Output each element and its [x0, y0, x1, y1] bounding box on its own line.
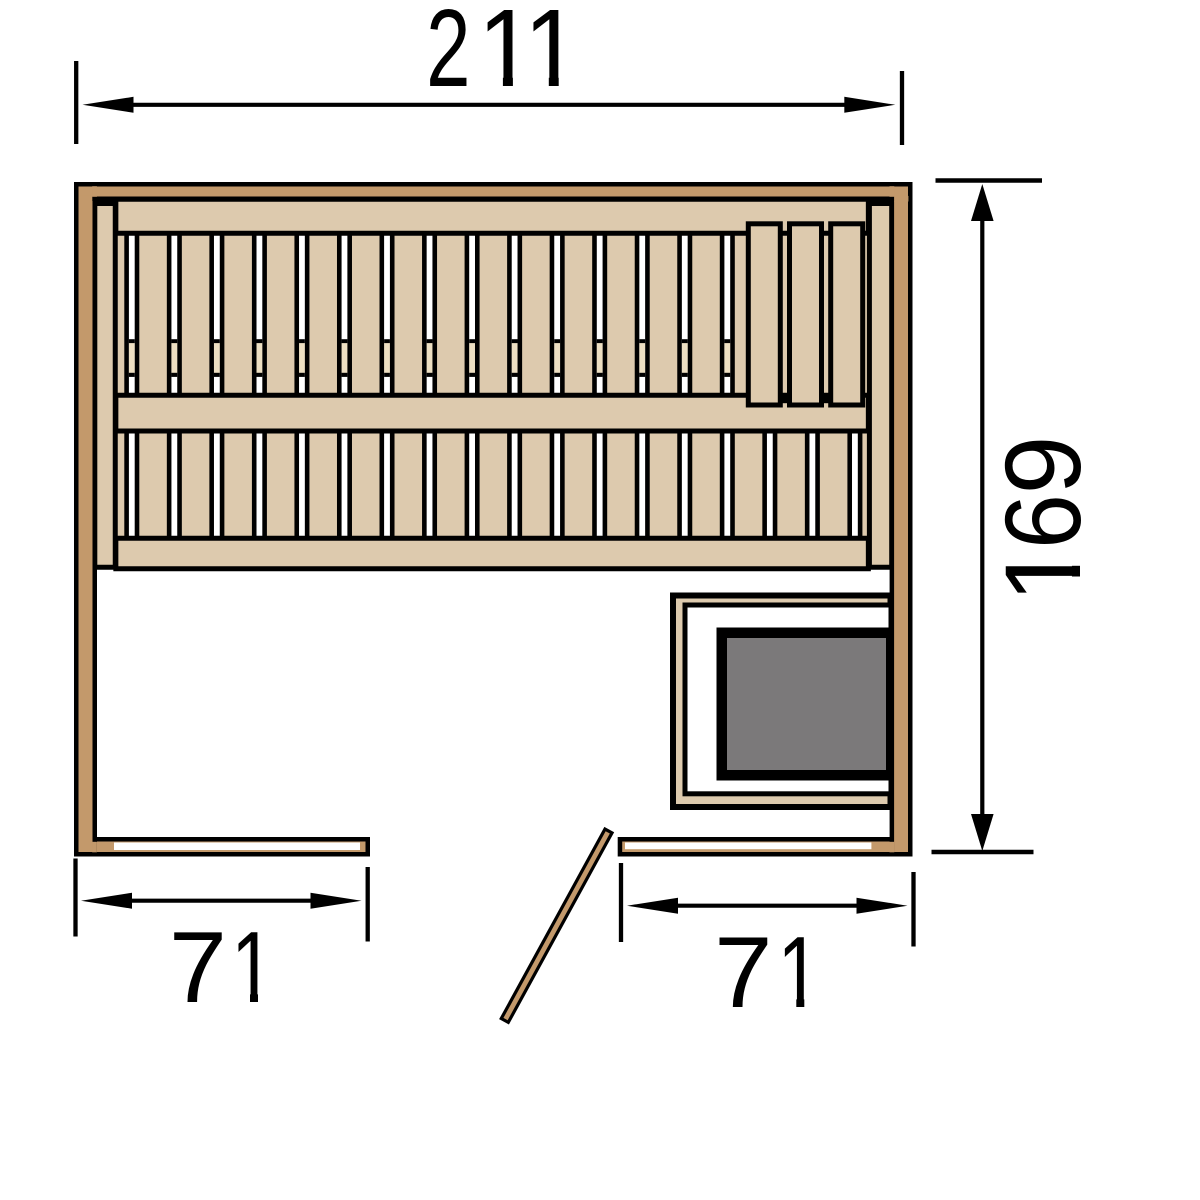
- svg-text:1: 1: [777, 916, 820, 1029]
- svg-text:9: 9: [982, 436, 1103, 495]
- svg-text:7: 7: [714, 916, 772, 1029]
- svg-text:2: 2: [426, 0, 470, 110]
- svg-text:1: 1: [524, 0, 581, 110]
- svg-text:1: 1: [231, 911, 274, 1024]
- svg-text:1: 1: [982, 543, 1103, 603]
- svg-text:7: 7: [169, 911, 227, 1024]
- svg-text:6: 6: [982, 494, 1103, 549]
